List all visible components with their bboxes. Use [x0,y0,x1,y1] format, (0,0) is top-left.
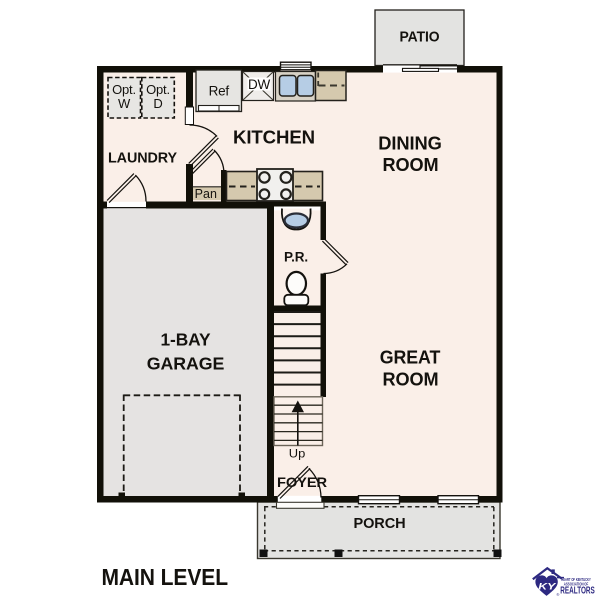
svg-text:Opt.: Opt. [112,82,136,97]
svg-text:Up: Up [289,449,306,461]
svg-text:D: D [153,96,162,111]
svg-text:®: ® [556,592,559,597]
svg-text:ROOM: ROOM [383,370,439,390]
svg-text:Opt.: Opt. [146,82,170,97]
svg-text:PATIO: PATIO [400,29,440,46]
svg-text:MAIN LEVEL: MAIN LEVEL [102,564,229,590]
svg-text:PORCH: PORCH [354,516,406,532]
svg-text:KY: KY [538,582,557,593]
svg-text:LAUNDRY: LAUNDRY [108,151,177,167]
svg-text:REALTORS: REALTORS [560,586,595,597]
svg-text:KITCHEN: KITCHEN [233,128,315,148]
svg-text:P.R.: P.R. [284,250,308,265]
svg-text:GREAT: GREAT [380,348,441,368]
svg-text:Pan: Pan [195,187,217,201]
svg-text:ROOM: ROOM [383,155,439,175]
svg-text:DW: DW [248,77,271,92]
svg-text:Ref: Ref [209,84,230,99]
svg-text:DINING: DINING [378,134,442,154]
svg-text:W: W [118,96,131,111]
svg-text:GARAGE: GARAGE [147,354,225,374]
svg-text:1-BAY: 1-BAY [161,330,211,350]
